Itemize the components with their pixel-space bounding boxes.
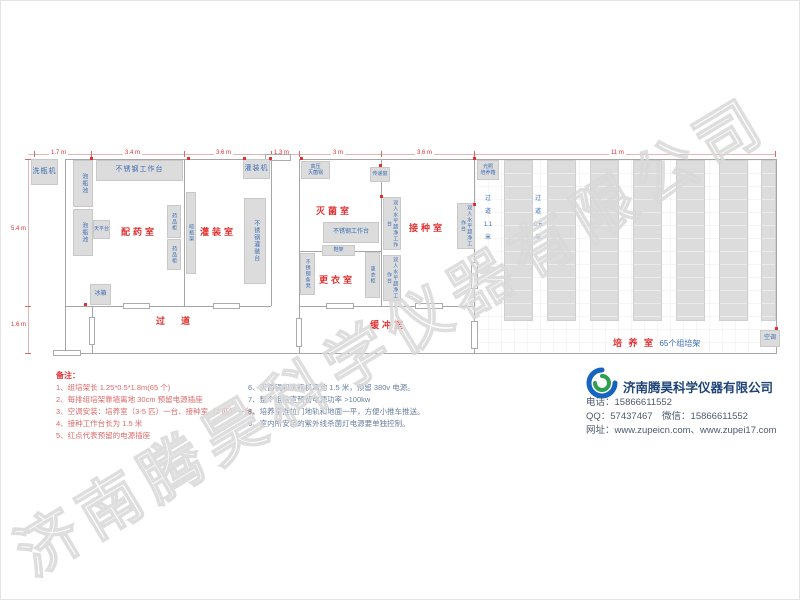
steel-filling-table-box: 不锈钢灌装台 bbox=[244, 198, 266, 284]
dim-tick bbox=[184, 151, 185, 157]
wall-top-middle-block bbox=[299, 159, 474, 160]
soak-pool-box-1: 泡瓶池 bbox=[73, 160, 93, 207]
dim-tick bbox=[25, 353, 31, 354]
steel-worktable-box-prep: 不锈钢工作台 bbox=[96, 160, 183, 181]
fridge-box: 冰箱 bbox=[90, 284, 111, 305]
dim-label-11m: 11 m bbox=[609, 150, 626, 157]
room-label-sterilize: 灭菌室 bbox=[316, 204, 352, 217]
company-website: 网址：www.zupeicn.com、www.zupei17.com bbox=[586, 422, 777, 436]
wall-top-culture-room bbox=[474, 159, 776, 160]
note-item-4: 4、接种工作台长为 1.5 米 bbox=[56, 418, 142, 429]
tissue-culture-rack-row bbox=[590, 160, 619, 321]
power-socket-dot bbox=[775, 327, 778, 330]
dim-tick bbox=[34, 151, 35, 157]
wall-left-block-bottom bbox=[65, 306, 271, 307]
tissue-culture-rack-row bbox=[676, 160, 705, 321]
note-item-2: 2、每排组培架靠墙离地 30cm 预留电源插座 bbox=[56, 394, 203, 405]
dim-label-1-7m: 1.7 m bbox=[49, 150, 68, 157]
tissue-culture-rack-row bbox=[504, 160, 533, 321]
power-socket-dot bbox=[473, 203, 476, 206]
room-label-filling: 灌装室 bbox=[200, 225, 236, 238]
tissue-culture-rack-row bbox=[547, 160, 576, 321]
power-socket-dot bbox=[473, 157, 476, 160]
dim-label-3-6m-b: 3.6 m bbox=[415, 150, 434, 157]
dim-label-3-4m: 3.4 m bbox=[123, 150, 142, 157]
dim-tick bbox=[25, 306, 31, 307]
note-item-6: 6、灭菌锅和洗瓶机离地 1.5 米，预留 380v 电源。 bbox=[248, 382, 415, 393]
room-label-prep: 配药室 bbox=[121, 225, 157, 238]
culture-rack-count-label: 65个组培架 bbox=[659, 339, 700, 348]
balance-table-box: 天平台 bbox=[93, 220, 110, 239]
pass-window-box: 传递窗 bbox=[370, 167, 390, 182]
power-socket-dot bbox=[379, 164, 382, 167]
power-socket-dot bbox=[243, 157, 246, 160]
door-bottom-outer bbox=[53, 350, 81, 356]
bottle-drying-rack-box: 晾瓶架 bbox=[186, 192, 196, 274]
filling-machine-box: 灌装机 bbox=[243, 159, 270, 179]
light-incubator-box: 光照 培养箱 bbox=[477, 160, 499, 180]
company-phone: 电话：15866611552 bbox=[586, 394, 672, 408]
tissue-culture-rack-row bbox=[719, 160, 748, 321]
room-label-corridor: 过道 bbox=[156, 314, 206, 327]
room-label-inoculation: 接种室 bbox=[409, 221, 445, 234]
clean-bench-box-3: 双人水平超净工作台 bbox=[457, 203, 475, 249]
room-label-buffer: 缓冲室 bbox=[370, 318, 406, 331]
locker-box: 更衣柜 bbox=[365, 252, 380, 298]
room-label-culture-group: 培 养 室 65个组培架 bbox=[613, 333, 700, 351]
power-socket-dot bbox=[84, 303, 87, 306]
shoe-rack-box: 鞋架 bbox=[322, 245, 355, 256]
note-item-3: 3、空调安装：培养室（3-5 匹）一台、接种室（2 匹）一台。 bbox=[56, 406, 259, 417]
door-filling-room bbox=[213, 303, 240, 309]
medicine-cabinet-box-2: 药品柜 bbox=[167, 239, 181, 270]
door-buffer-left bbox=[296, 318, 302, 347]
tissue-culture-rack-row bbox=[633, 160, 662, 321]
aisle-label-0-6m: 过 道 0.6 米 bbox=[532, 193, 544, 245]
dim-label-3m: 3 m bbox=[331, 150, 345, 157]
dimension-line-left bbox=[28, 159, 29, 353]
bottle-washer-box: 洗瓶机 bbox=[31, 159, 58, 185]
clean-bench-box-2: 双人水平超净工作台 bbox=[383, 255, 401, 301]
dim-tick bbox=[775, 151, 776, 157]
door-corridor-left bbox=[89, 317, 95, 345]
door-inoculation-room bbox=[415, 303, 443, 309]
aisle-label-1-1m: 过 道 1.1 米 bbox=[482, 193, 494, 245]
wall-right-outer bbox=[776, 159, 777, 353]
power-socket-dot bbox=[187, 157, 190, 160]
power-socket-dot bbox=[380, 195, 383, 198]
power-socket-dot bbox=[90, 157, 93, 160]
room-label-changing: 更衣室 bbox=[319, 273, 355, 286]
steel-bench-box: 不锈钢条凳 bbox=[300, 253, 315, 295]
note-item-1: 1、组培架长 1.25*0.5*1.8m(65 个) bbox=[56, 382, 170, 393]
room-label-culture: 培 养 室 bbox=[613, 338, 655, 348]
note-item-9: 9、室内所安装的紫外线杀菌灯电源要单独控制。 bbox=[248, 418, 410, 429]
autoclave-box: 高压 灭菌锅 bbox=[301, 161, 330, 179]
wall-prep-filling bbox=[184, 159, 185, 306]
company-qq-wechat: QQ：57437467 微信：15866611552 bbox=[586, 408, 748, 422]
notes-title: 备注： bbox=[56, 370, 80, 381]
note-item-5: 5、红点代表预留的电源插座 bbox=[56, 430, 150, 441]
dim-tick bbox=[381, 151, 382, 157]
door-buffer-culture bbox=[471, 321, 478, 349]
medicine-cabinet-box-1: 药品柜 bbox=[167, 205, 181, 238]
note-item-8: 8、培养室推拉门地轨和地面一平，方便小推车推送。 bbox=[248, 406, 425, 417]
soak-pool-box-2: 泡瓶池 bbox=[73, 209, 93, 256]
floor-plan-page: 济南腾昊科学仪器有限公司 1.7 m 3.4 m 3.6 m 1.3 m 3 m… bbox=[0, 0, 800, 600]
door-inoculation-culture bbox=[471, 262, 478, 289]
tissue-culture-rack-row bbox=[761, 160, 776, 321]
dim-label-1-6m: 1.6 m bbox=[9, 322, 28, 329]
door-changing-room bbox=[326, 303, 354, 309]
power-socket-dot bbox=[300, 157, 303, 160]
dim-label-5-4m: 5.4 m bbox=[9, 226, 28, 233]
wall-left-block-right bbox=[271, 159, 272, 306]
power-socket-dot bbox=[269, 157, 272, 160]
air-conditioner-box: 空调 bbox=[760, 330, 780, 347]
note-item-7: 7、整个组培室预留电源功率 >100kw bbox=[248, 394, 370, 405]
steel-worktable-box-sterilize: 不锈钢工作台 bbox=[323, 222, 379, 243]
wall-left-outer bbox=[65, 159, 66, 353]
door-prep-room bbox=[123, 303, 150, 309]
dim-label-3-6m: 3.6 m bbox=[214, 150, 233, 157]
clean-bench-box-1: 双人水平超净工作台 bbox=[383, 197, 401, 250]
wall-bottom-outer bbox=[65, 353, 777, 354]
